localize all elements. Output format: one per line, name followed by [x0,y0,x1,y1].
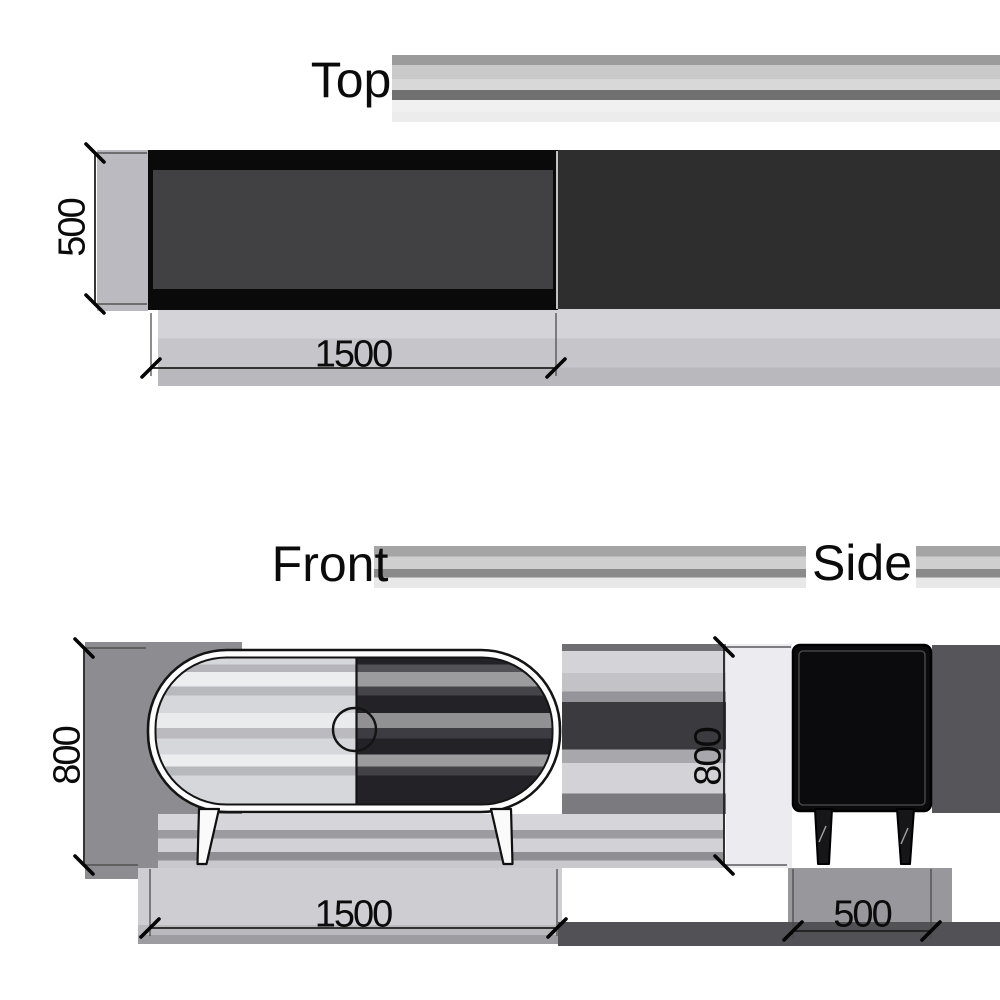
side-left-leg [815,809,832,864]
top-depth-dimension [86,144,147,313]
front-knob-circle [333,708,376,751]
front-view [75,639,566,937]
front-left-door [155,657,357,805]
drawing-canvas: Top Front Side 500 1500 800 1500 800 500 [0,0,1000,1000]
side-right-leg-highlight [901,828,908,844]
front-body-fill [148,650,560,812]
side-left-light-panel [726,644,792,868]
front-body-outer-outline [148,650,560,812]
front-right-leg [491,809,513,864]
side-height-label: 800 [688,728,731,785]
side-right-leg [897,809,914,864]
front-view-title: Front [272,535,389,593]
front-left-leg [198,809,220,864]
side-body-inner-highlight [799,651,925,805]
top-panel-right-smear [556,150,1000,309]
side-left-leg-highlight [819,826,826,842]
front-width-label: 1500 [315,894,392,937]
door-streak-overlay [155,657,553,805]
side-width-label: 500 [833,894,890,937]
side-right-shadow [932,645,1000,813]
top-title-smear [392,55,1000,122]
floor-dark-band [558,922,1000,946]
side-title-smear [916,546,1000,588]
top-panel-outline [148,150,558,310]
front-body-inner-outline [156,658,553,805]
top-width-label: 1500 [315,334,392,377]
side-body [793,645,931,811]
top-view-title: Top [311,51,392,109]
front-title-smear [374,546,806,588]
front-right-door [357,657,554,805]
side-view [715,638,940,940]
front-under-body-bands [158,814,724,868]
drawing-linework [0,0,1000,1000]
top-depth-label: 500 [52,199,95,256]
top-panel-below-shadow [158,309,1000,386]
top-depth-dim-shadow [97,150,148,311]
side-view-title: Side [812,534,912,592]
top-panel-surface [153,170,553,289]
front-left-shadow [85,642,242,879]
front-height-label: 800 [47,727,90,784]
